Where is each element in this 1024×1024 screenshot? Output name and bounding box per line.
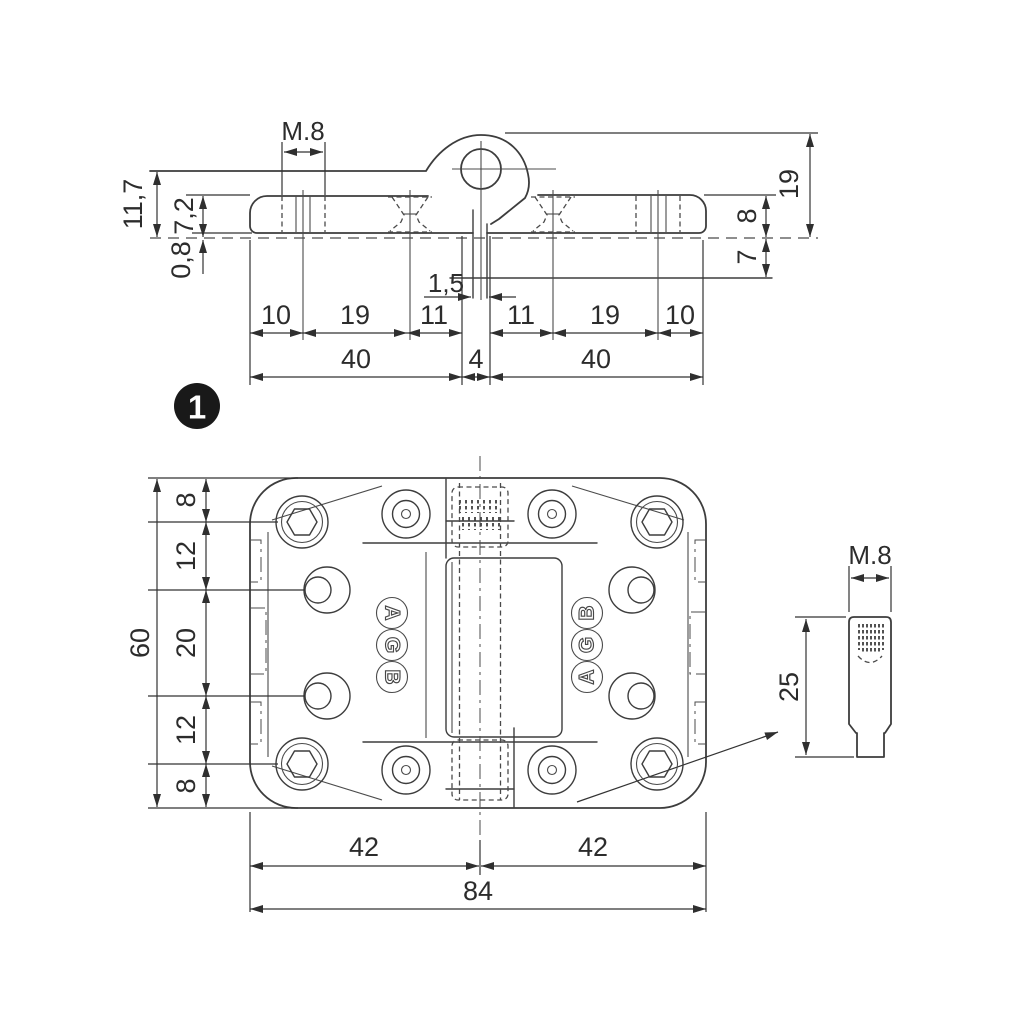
washer-center — [402, 766, 411, 775]
slot-lines — [473, 210, 487, 298]
figure-badge: 1 — [174, 383, 220, 429]
hinge-technical-drawing: M.8 11,7 7,2 0,8 19 8 7 1,5 10 19 — [0, 0, 1024, 1024]
pin-m8-label: M.8 — [848, 540, 891, 570]
tongue-outline — [446, 558, 562, 737]
dim-label-42r: 42 — [578, 832, 608, 862]
dim-label-42l: 42 — [349, 832, 379, 862]
washer-hole-top-left — [382, 490, 430, 538]
dim-label-c1: 10 — [261, 300, 291, 330]
washer-outer — [528, 746, 576, 794]
pin-detail: M.8 25 — [774, 540, 892, 757]
dim-label-t1: 40 — [341, 344, 371, 374]
pin-m8-ext-lines — [849, 566, 891, 612]
washer-hole-bottom-left — [382, 746, 430, 794]
hex-socket — [642, 509, 672, 535]
edge-notches-left — [250, 540, 266, 744]
right-leaf-profile — [487, 195, 706, 233]
chain-row-2: 40 4 40 — [250, 344, 703, 377]
hex-screw-bottom-left — [276, 738, 328, 790]
counterbore-outer — [609, 673, 655, 719]
face-edge-lines — [268, 532, 688, 757]
dim-label-84: 84 — [463, 876, 493, 906]
dim-label-8r: 8 — [732, 208, 762, 223]
counterbore-inner — [628, 683, 654, 709]
washer-outer — [382, 490, 430, 538]
brand-letter: A — [576, 669, 599, 684]
dim-label-0-8: 0,8 — [166, 241, 196, 279]
dim-label-7-2: 7,2 — [169, 197, 199, 235]
dim-label-h1: 8 — [171, 492, 201, 507]
counterbore-inner — [305, 577, 331, 603]
brand-letter: A — [381, 605, 404, 620]
washer-center — [548, 510, 557, 519]
washer-outer — [382, 746, 430, 794]
edge-notches-right — [690, 540, 706, 744]
corner-chamfer-lines — [272, 486, 684, 800]
hex-socket — [287, 751, 317, 777]
dim-label-c2: 19 — [340, 300, 370, 330]
washer-outer — [528, 490, 576, 538]
dim-label-h5: 8 — [171, 778, 201, 793]
m8-ext-lines — [282, 142, 325, 195]
washer-center — [402, 510, 411, 519]
brand-letter: B — [576, 605, 599, 620]
washer-mid — [539, 757, 566, 784]
pin-hidden-lines — [460, 483, 501, 800]
hex-outer-ring — [631, 496, 683, 548]
counterbore-inner — [628, 577, 654, 603]
dim-label-1-5: 1,5 — [428, 268, 464, 298]
hex-outer-ring — [276, 738, 328, 790]
washer-center — [548, 766, 557, 775]
dim-label-c4: 11 — [507, 300, 535, 330]
counterbore-inner — [305, 683, 331, 709]
height-chain: 8 12 20 12 8 — [171, 479, 206, 807]
dim-label-h2: 12 — [171, 541, 201, 571]
knuckle-dome-profile — [150, 135, 529, 224]
hex-screw-top-left — [276, 496, 328, 548]
counterbore-lower-left — [304, 673, 350, 719]
pin-body-outline — [849, 617, 891, 757]
dim-label-h3: 20 — [171, 628, 201, 658]
brand-letter: G — [576, 637, 599, 653]
counterbore-outer — [304, 673, 350, 719]
dim-label-11-7: 11,7 — [118, 179, 148, 230]
chain-row-1: 10 19 11 11 19 10 — [250, 300, 703, 333]
hex-socket — [642, 751, 672, 777]
washer-mid — [393, 757, 420, 784]
counterbore-outer — [304, 567, 350, 613]
dim-label-c6: 10 — [665, 300, 695, 330]
counterbore-outer — [609, 567, 655, 613]
hex-outer-ring — [631, 738, 683, 790]
plan-view: A G B B G A 60 8 12 20 12 8 — [125, 456, 778, 912]
dim-label-t2: 4 — [468, 344, 483, 374]
washer-mid — [539, 501, 566, 528]
hex-outer-ring — [276, 496, 328, 548]
dim-label-h4: 12 — [171, 715, 201, 745]
hex-socket — [287, 509, 317, 535]
left-leaf-profile — [250, 196, 473, 233]
dim-label-7r: 7 — [732, 249, 762, 264]
pin-knurl-arc — [858, 656, 882, 663]
counterbore-lower-right — [609, 673, 655, 719]
m8-label: M.8 — [281, 116, 324, 146]
hex-screw-bottom-right — [631, 738, 683, 790]
hex-screw-top-right — [631, 496, 683, 548]
top-section-view: M.8 11,7 7,2 0,8 19 8 7 1,5 10 19 — [118, 116, 818, 385]
brand-letter: G — [381, 637, 404, 653]
dim-label-60: 60 — [125, 628, 155, 658]
washer-hole-top-right — [528, 490, 576, 538]
badge-number: 1 — [188, 389, 206, 426]
pin-knurl-ticks — [859, 624, 883, 653]
dim-label-c5: 19 — [590, 300, 620, 330]
counterbore-upper-left — [304, 567, 350, 613]
brand-logo-right: B G A — [572, 598, 603, 693]
pin-length-label: 25 — [774, 672, 804, 702]
right-ext-lines — [505, 133, 818, 195]
dim-label-t3: 40 — [581, 344, 611, 374]
washer-hole-bottom-right — [528, 746, 576, 794]
dim-label-19r: 19 — [774, 169, 804, 199]
brand-logo-left: A G B — [377, 598, 408, 693]
washer-mid — [393, 501, 420, 528]
brand-letter: B — [381, 669, 404, 684]
counterbore-upper-right — [609, 567, 655, 613]
dim-label-c3: 11 — [420, 300, 448, 330]
